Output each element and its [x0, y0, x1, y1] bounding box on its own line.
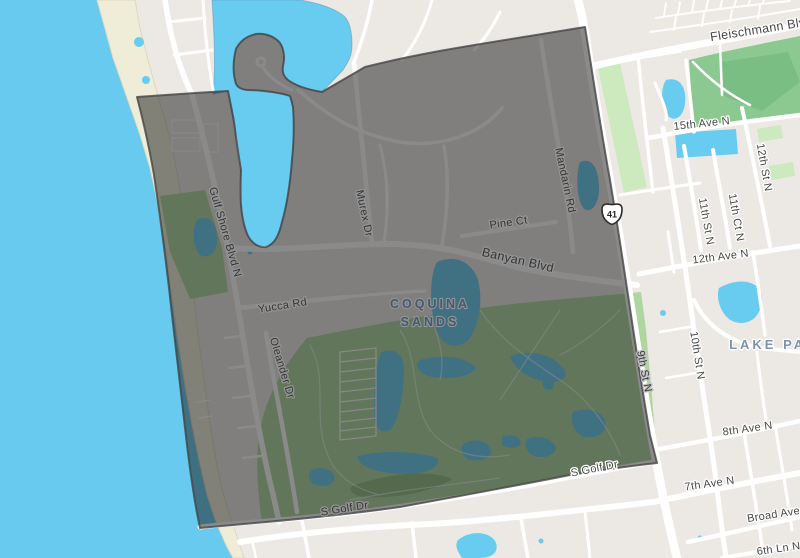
selected-region-overlay[interactable] [137, 27, 657, 528]
neighborhood-label-coquina: COQUINA [390, 297, 470, 311]
route-shield-number: 41 [607, 210, 617, 220]
area-label-lake-park: LAKE PARK [729, 337, 800, 352]
map-svg[interactable]: Gulf Shore Blvd N Murex Dr Mandarin Rd P… [0, 0, 800, 558]
neighborhood-label-sands: SANDS [401, 315, 460, 329]
map-canvas[interactable]: Gulf Shore Blvd N Murex Dr Mandarin Rd P… [0, 0, 800, 558]
